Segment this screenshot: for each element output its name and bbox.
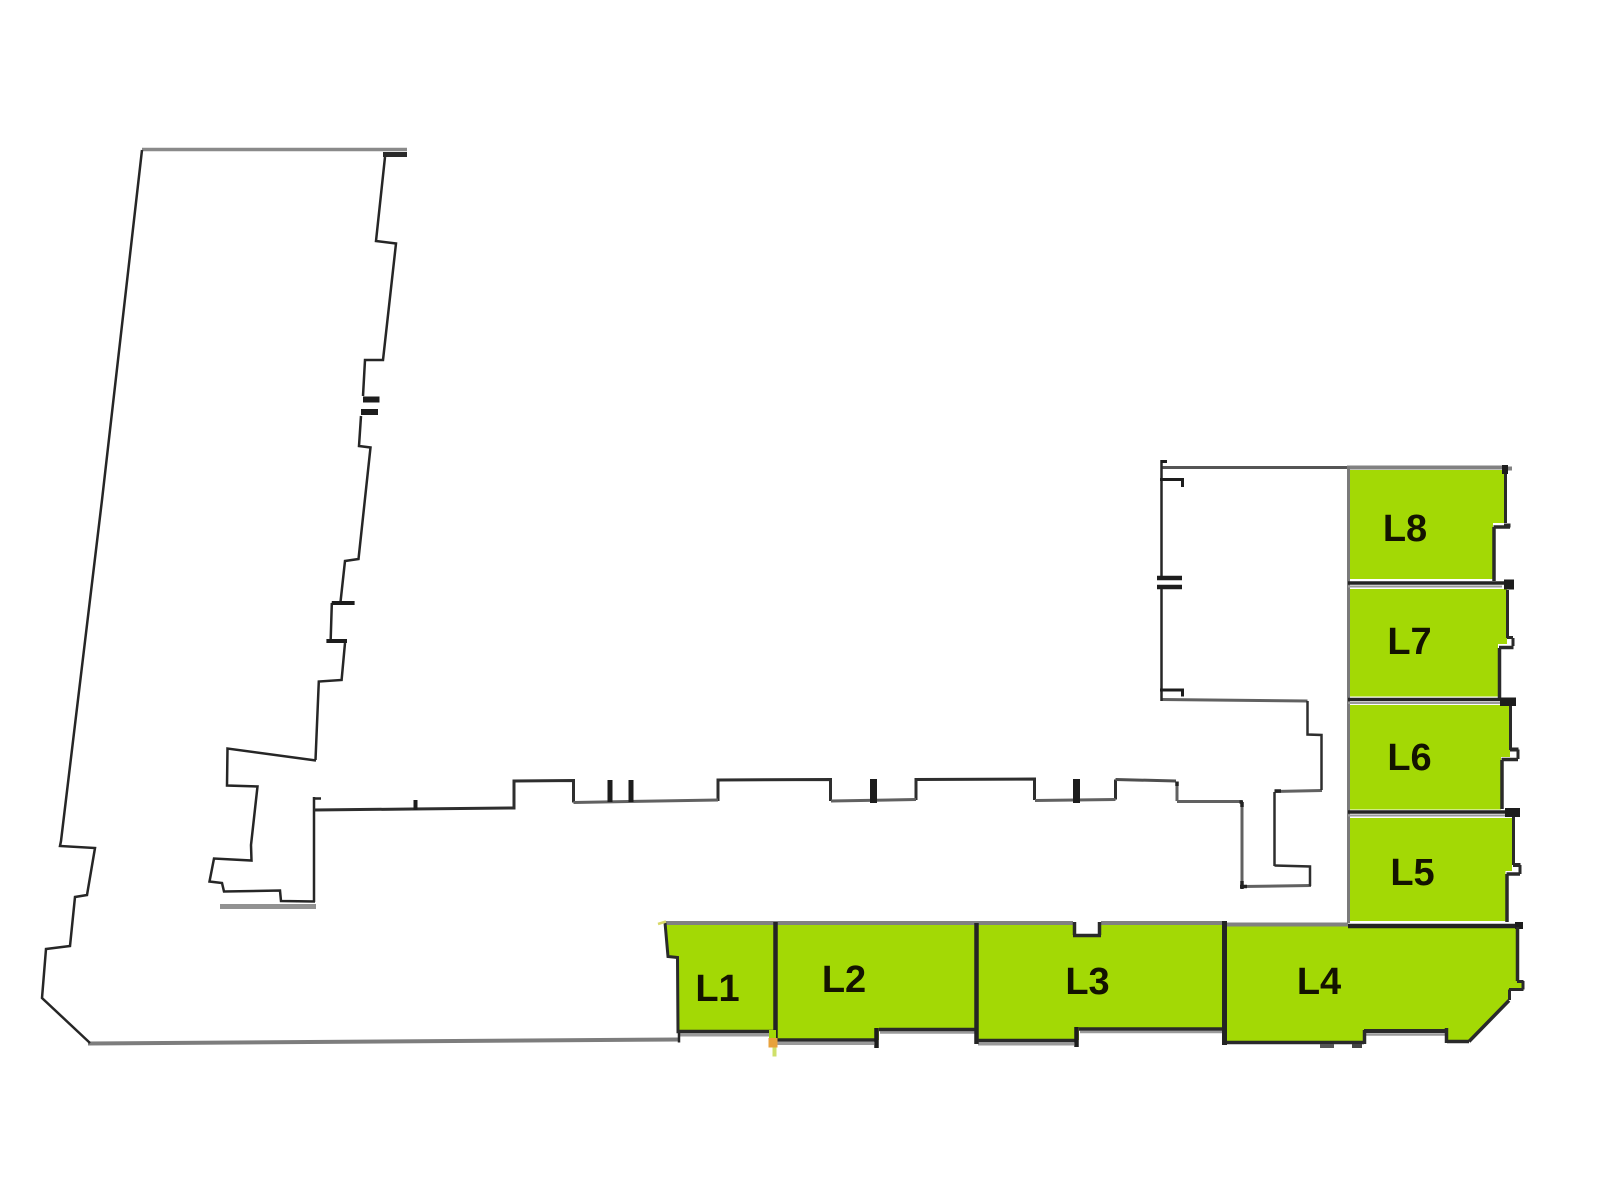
svg-text:L8: L8 (1383, 508, 1427, 550)
svg-text:L7: L7 (1387, 621, 1431, 663)
svg-text:L6: L6 (1387, 737, 1431, 779)
svg-text:L5: L5 (1390, 852, 1434, 894)
svg-text:L3: L3 (1065, 961, 1109, 1003)
svg-text:L2: L2 (822, 959, 866, 1001)
svg-text:L1: L1 (695, 968, 739, 1010)
svg-text:L4: L4 (1297, 961, 1341, 1003)
